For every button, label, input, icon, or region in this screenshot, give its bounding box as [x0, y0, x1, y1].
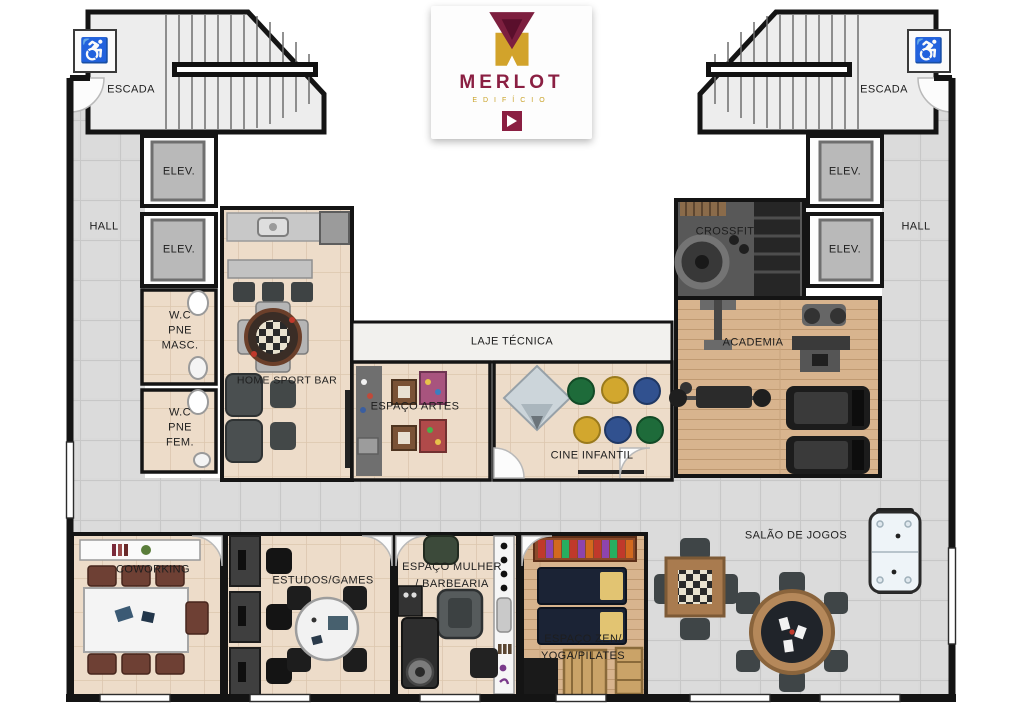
- espaco-zen-room: [522, 534, 646, 698]
- floor-plan: ESCADA ESCADA ELEV. ELEV. ELEV. ELEV. HA…: [0, 0, 1024, 724]
- label-crossfit: CROSSFIT: [696, 225, 755, 240]
- coworking-room: [72, 534, 222, 698]
- wheelchair-icon: ♿: [80, 44, 110, 59]
- crossfit-room: [676, 200, 804, 298]
- label-hall-right: HALL: [901, 220, 930, 235]
- estudos-games-room: [226, 534, 392, 698]
- air-hockey-table: [870, 508, 920, 594]
- logo-d-mark: [502, 111, 522, 131]
- logo-card: MERLOT EDIFÍCIO: [431, 6, 592, 139]
- home-sport-bar-room: [222, 208, 352, 480]
- espaco-artes-room: [352, 362, 490, 480]
- hall-right-floor: [882, 78, 952, 480]
- label-wc-masc: W.C PNE MASC.: [162, 309, 199, 354]
- stairs-right: [700, 12, 950, 132]
- label-coworking: COWORKING: [116, 563, 190, 578]
- label-elev-right-1: ELEV.: [829, 165, 861, 180]
- label-estudos-games: ESTUDOS/GAMES: [272, 574, 373, 589]
- label-salao-jogos: SALÃO DE JOGOS: [745, 529, 847, 544]
- label-cine-infantil: CINE INFANTIL: [551, 449, 634, 464]
- label-hall-left: HALL: [89, 220, 118, 235]
- label-laje-tecnica: LAJE TÉCNICA: [471, 335, 553, 350]
- label-elev-left-2: ELEV.: [163, 243, 195, 258]
- label-elev-left-1: ELEV.: [163, 165, 195, 180]
- academia-room: [669, 298, 880, 476]
- corridor-floor: [70, 478, 952, 534]
- label-espaco-mulher: ESPAÇO MULHER / BARBEARIA: [402, 559, 502, 593]
- label-wc-fem: W.C PNE FEM.: [166, 406, 194, 451]
- label-home-sport-bar: HOME SPORT BAR: [237, 374, 337, 389]
- label-escada-right: ESCADA: [860, 83, 908, 98]
- label-espaco-artes: ESPAÇO ARTES: [371, 400, 460, 415]
- label-espaco-zen: ESPAÇO ZEN/ YOGA/PILATES: [541, 631, 625, 665]
- label-escada-left: ESCADA: [107, 83, 155, 98]
- logo-title: MERLOT: [459, 72, 563, 94]
- stairs-left: [74, 12, 324, 132]
- label-elev-right-2: ELEV.: [829, 243, 861, 258]
- label-academia: ACADEMIA: [723, 336, 784, 351]
- logo-subtitle: EDIFÍCIO: [472, 97, 550, 104]
- hall-left-floor: [70, 78, 145, 480]
- wheelchair-icon: ♿: [914, 44, 944, 59]
- merlot-logo-mark: [481, 12, 543, 70]
